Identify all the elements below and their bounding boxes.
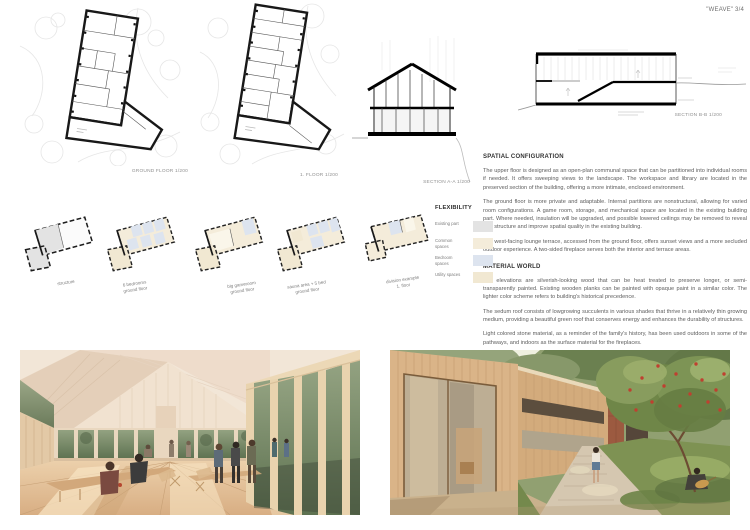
legend-item-common-spaces: Common spaces [435,238,493,249]
flexibility-title: FLEXIBILITY [435,205,472,211]
flexibility-diagram-division-example [350,200,434,282]
near-pavilion [390,350,518,515]
spatial-paragraph-1: The upper floor is designed as an open-p… [483,167,747,192]
section-bb-label: SECTION B-B 1/200 [622,113,722,118]
interior-render [20,350,360,515]
spatial-paragraph-2: The ground floor is more private and ada… [483,198,747,232]
spatial-paragraph-3: The west-facing lounge terrace, accessed… [483,238,747,255]
legend-label: Bedroom spaces [435,255,467,266]
ground-floor-label: GROUND FLOOR 1/200 [88,169,188,174]
material-paragraph-1: The elevations are silverish-looking woo… [483,277,747,302]
legend-swatch-bedroom-spaces [473,255,493,266]
text-column: SPATIAL CONFIGURATION The upper floor is… [483,154,747,353]
legend-item-utility-spaces: Utility spaces [435,272,493,283]
flexibility-diagram-6-bedrooms [98,202,182,284]
legend-item-existing-part: Existing part [435,221,493,232]
spatial-configuration-heading: SPATIAL CONFIGURATION [483,154,747,160]
right-glass-wall [246,360,360,515]
section-bb-drawing [518,48,746,120]
sheet-title: "WEAVE" 3/4 [640,7,744,13]
mullion-hints [544,57,670,80]
ground-floor-plan-drawing [18,6,188,166]
flexibility-legend: Existing part Common spaces Bedroom spac… [435,221,493,289]
exterior-render [390,350,730,515]
legend-swatch-common-spaces [473,238,493,249]
material-world-heading: MATERIAL WORLD [483,264,747,270]
section-aa-label: SECTION A-A 1/200 [370,180,470,185]
legend-label: Existing part [435,221,467,227]
legend-item-bedroom-spaces: Bedroom spaces [435,255,493,266]
legend-label: Common spaces [435,238,467,249]
flexibility-diagram-big-gameroom [186,202,270,284]
first-floor-plan-drawing [196,2,346,170]
building-plan [235,5,346,153]
legend-label: Utility spaces [435,272,467,278]
material-paragraph-2: The sedum roof consists of lowgrowing su… [483,308,747,325]
flexibility-diagram-structure [16,202,100,284]
legend-swatch-existing-part [473,221,493,232]
section-aa-drawing [352,30,472,182]
material-paragraph-3: Light colored stone material, as a remin… [483,330,747,347]
presentation-board: "WEAVE" 3/4 [0,0,750,530]
legend-swatch-utility-spaces [473,272,493,283]
first-floor-label: 1. FLOOR 1/200 [238,173,338,178]
flexibility-diagram-sauna-area [268,202,352,284]
